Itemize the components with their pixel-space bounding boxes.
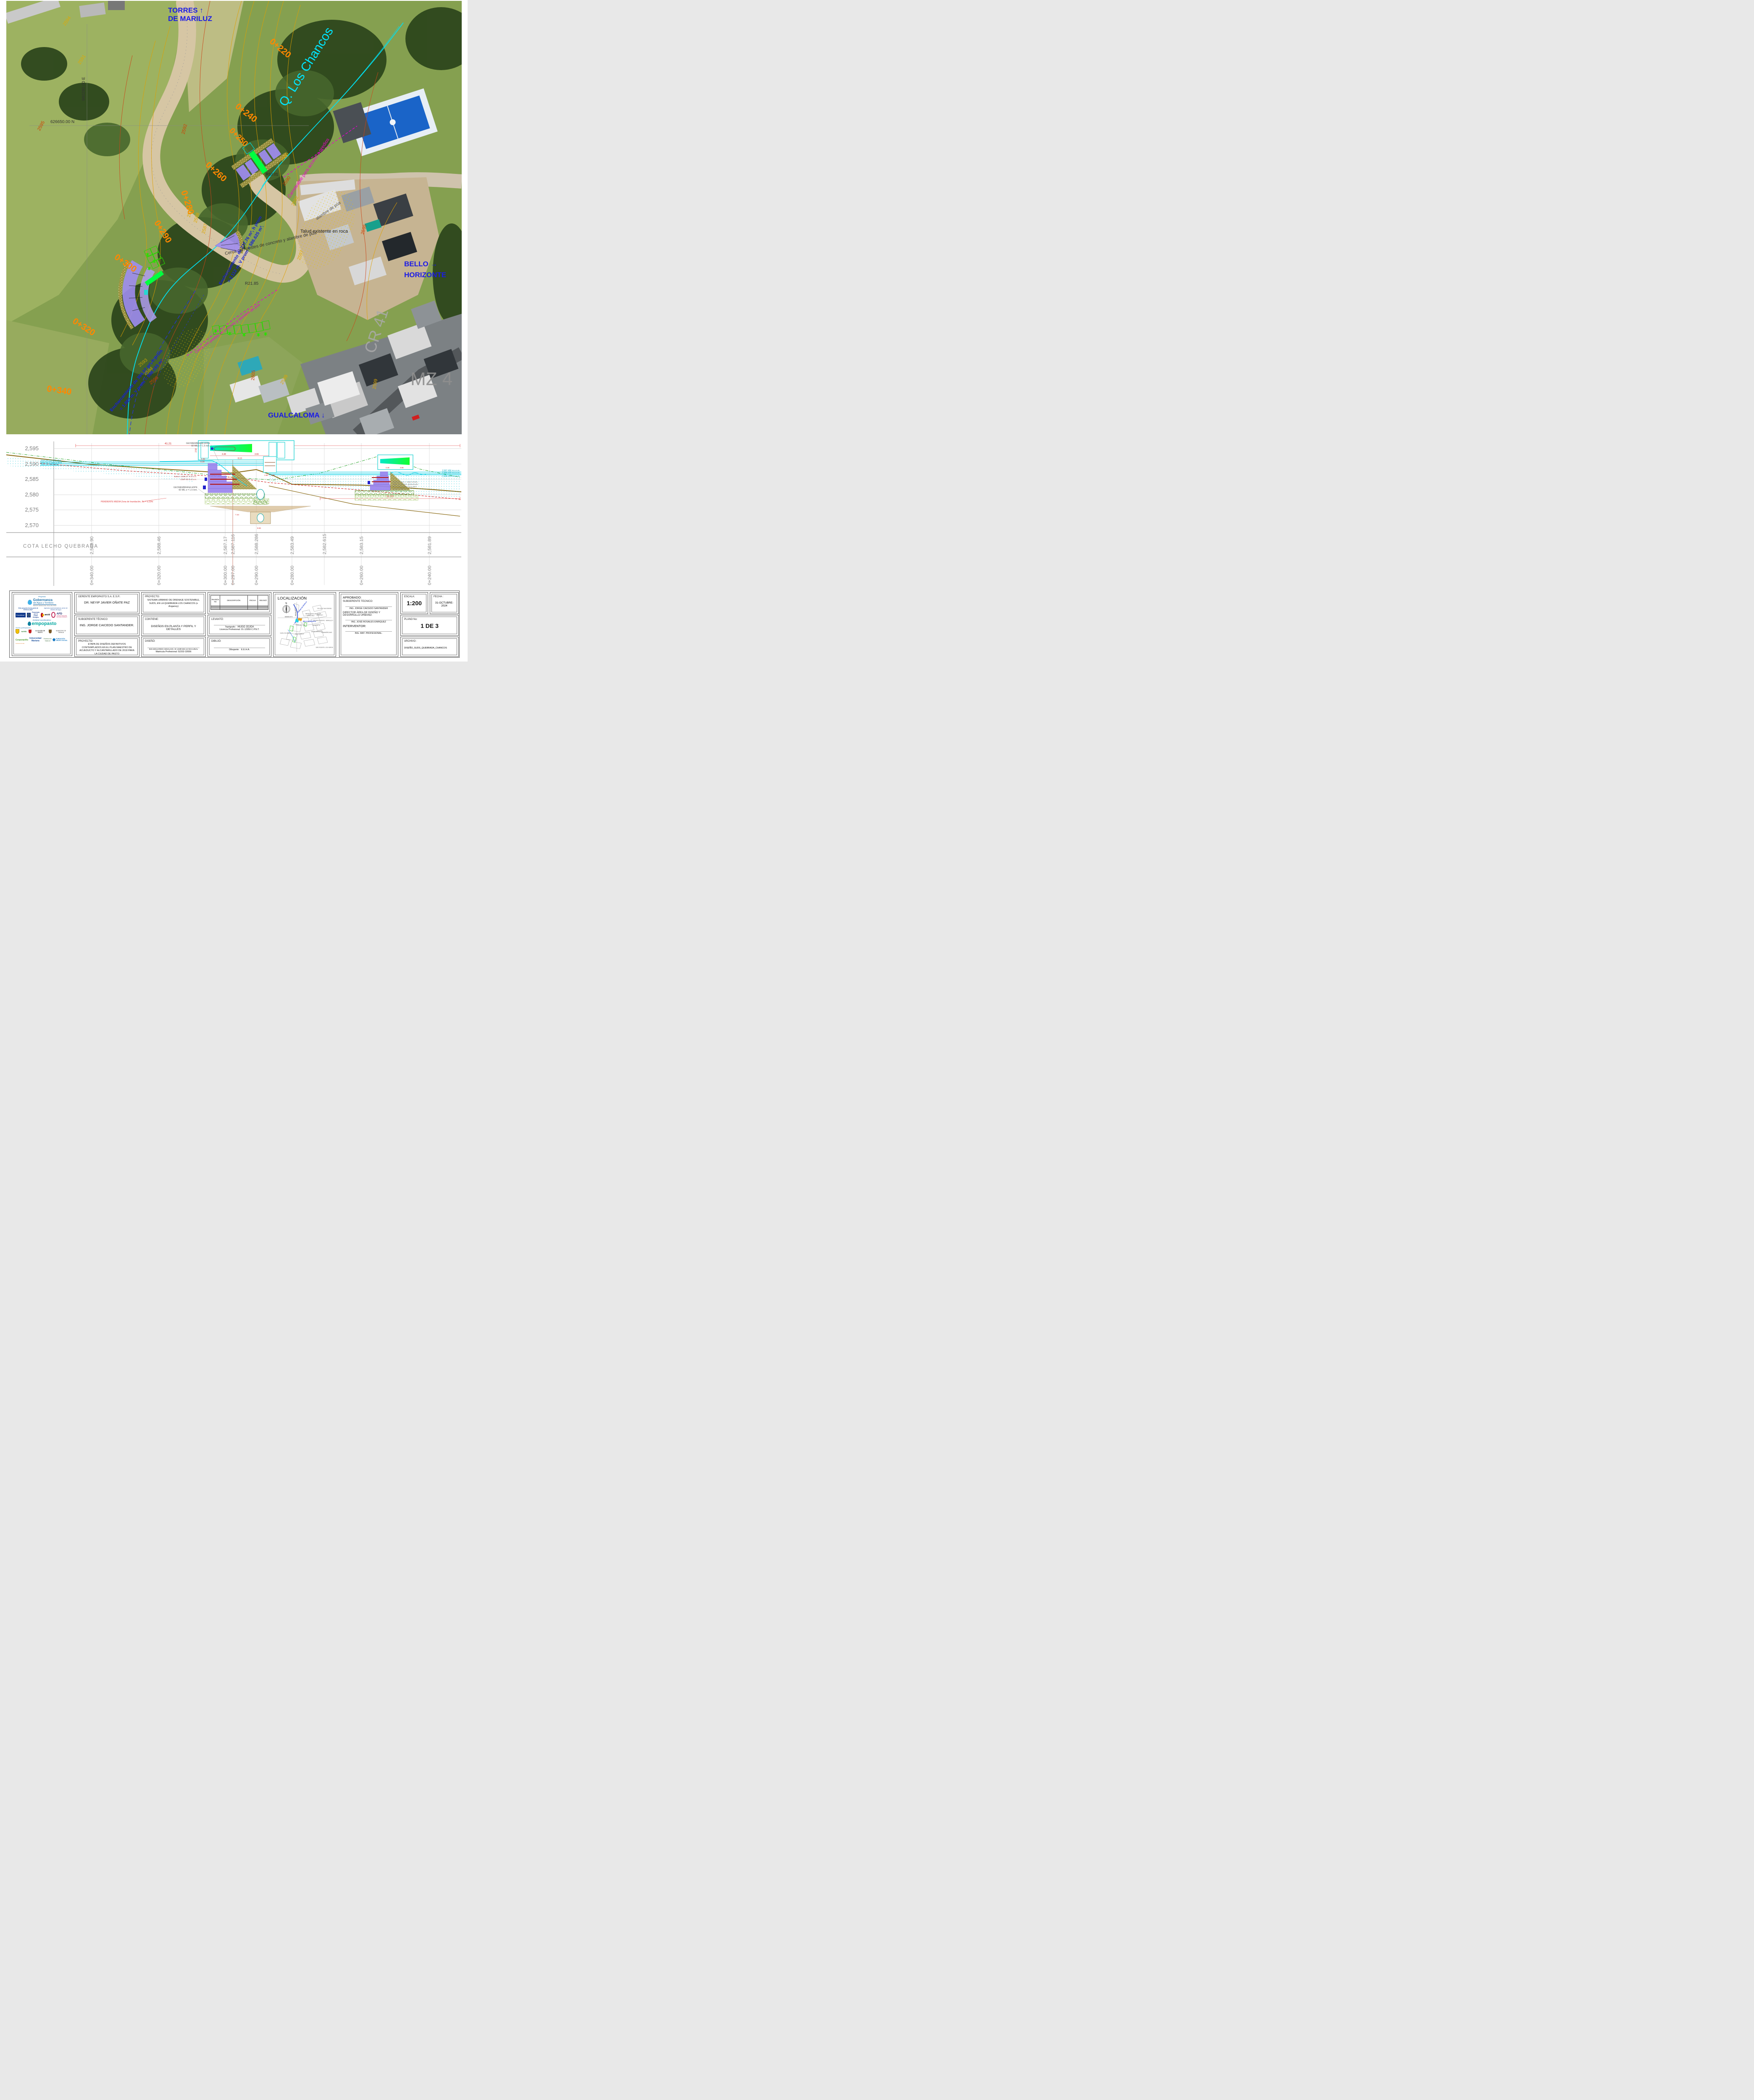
- svg-text:2,588.46: 2,588.46: [157, 536, 162, 554]
- svg-text:8.13: 8.13: [238, 457, 242, 460]
- aecid-icon: [41, 613, 43, 617]
- plan-view: 626650.00 N 980280.00 E: [6, 1, 462, 434]
- svg-text:2,588.286: 2,588.286: [254, 534, 259, 554]
- escudo-icon: [16, 629, 19, 634]
- revision-table: Revisión No DESCRIPCIÓN FECHA REVISÓ: [210, 595, 268, 610]
- fgs-hex-icon: [53, 638, 55, 641]
- svg-text:9.93: 9.93: [257, 527, 261, 529]
- svg-text:LOS HEROES: LOS HEROES: [325, 647, 333, 648]
- svg-text:2,570: 2,570: [25, 522, 39, 528]
- alcaldia-label: ALCALDÍA DE PASTO: [33, 630, 47, 633]
- detail-plan-2: 1.80 0.60: [263, 457, 276, 476]
- empopasto-drop-icon: [28, 622, 31, 626]
- station-values: 0+340.00 0+320.00 0+300.00 0+297.00 0+29…: [89, 566, 432, 585]
- gerente-name: DR. NEYIP JAVIER OÑATE PAZ: [78, 601, 136, 604]
- proyecto1-text: ETAPA DE DISEÑOS DEFINITIVOS CONTEMPLADO…: [78, 643, 136, 655]
- rev-row: [211, 609, 268, 609]
- svg-text:2,587.53 m.s.n.m.: 2,587.53 m.s.n.m.: [181, 478, 197, 481]
- svg-text:2,585: 2,585: [25, 476, 39, 482]
- aprobado-sub-label: SUBGERENTE TECNICO:: [343, 600, 394, 603]
- plano-value: 1 DE 3: [404, 622, 455, 629]
- svg-text:1.80: 1.80: [264, 474, 268, 476]
- eu-flag-icon: [27, 613, 31, 617]
- corponarino-sub: Conserva la vida.: [16, 643, 28, 644]
- gerente-label: GERENTE EMPOPASTO S.A. E.S.P.:: [78, 596, 136, 598]
- grid-north-label: 626650.00 N: [50, 120, 74, 124]
- proyecto2-box: PROYECTO: SISTEMA URBANO DE DRENAJE SOST…: [141, 592, 206, 614]
- svg-text:0+280.00: 0+280.00: [290, 566, 295, 585]
- subgerente-name: ING. JORGE CAICEDO SANTANDER.: [78, 623, 136, 627]
- euroclima-note: Este proyecto forma parte de EUROCLIMA+: [16, 607, 41, 611]
- gobernanza-wordmark: Gobernanza: [33, 598, 56, 602]
- svg-text:3.66: 3.66: [255, 453, 259, 456]
- plano-label: PLANO No:: [404, 618, 455, 621]
- corponarino-wordmark: Corponariño: [16, 639, 28, 641]
- fecha-value: 31-OCTUBRE-2024: [434, 601, 455, 607]
- tangua-shield-icon: [49, 630, 52, 633]
- afd-icon: [51, 612, 55, 618]
- svg-text:amarre calibre 12.: amarre calibre 12.: [392, 488, 408, 490]
- svg-text:VILLA DE SAN RAFAEL: VILLA DE SAN RAFAEL: [317, 608, 332, 609]
- svg-text:0+320.00: 0+320.00: [157, 566, 162, 585]
- loc-grid-n: 626650.00 N: [285, 616, 293, 618]
- svg-text:JORGE GIRALDO: JORGE GIRALDO: [311, 631, 322, 633]
- svg-text:SAN VICENTE: SAN VICENTE: [316, 647, 324, 648]
- pasto-shield-icon: [29, 630, 32, 633]
- svg-text:2,587.116: 2,587.116: [231, 534, 236, 554]
- svg-text:ED BARLOVENTO - MARILUZ II: ED BARLOVENTO - MARILUZ II: [313, 620, 333, 622]
- svg-text:2,587.17: 2,587.17: [223, 536, 228, 554]
- subgerente-box: SUBGERENTE TÉCNICO ING. JORGE CAICEDO SA…: [74, 615, 139, 636]
- svg-text:2,575: 2,575: [25, 507, 39, 513]
- svg-text:7.44: 7.44: [235, 514, 239, 516]
- afd-wordmark: AFD: [57, 612, 68, 615]
- rev-header: REVISÓ: [258, 596, 268, 606]
- svg-text:SINDAMANOY: SINDAMANOY: [295, 633, 304, 635]
- contiene-label: CONTIENE:: [145, 618, 202, 621]
- svg-text:VERACRUZ: VERACRUZ: [307, 615, 315, 617]
- fecha-box: FECHA : 31-OCTUBRE-2024: [430, 592, 459, 614]
- socios-label: Socios participantes:: [16, 627, 68, 629]
- proyecto2-label: PROYECTO:: [145, 596, 202, 598]
- svg-text:4.48: 4.48: [386, 467, 389, 469]
- svg-text:malla de alambre galvanizado: malla de alambre galvanizado: [392, 483, 418, 486]
- levanto-label: LEVANTÓ:: [211, 618, 268, 621]
- detail-plan-3: 4.48 3.66: [378, 455, 413, 470]
- gobernanza-region: REGIÓN HÍDRICA DEL VALLE DE ATRIZ: [33, 604, 56, 606]
- rev-header: Revisión No: [211, 596, 220, 606]
- afd-sub: AGENCE FRANÇAISE DE DEVELOPPEMENT: [57, 615, 68, 618]
- archivo-value: DISEÑO_SUDS_QUEBRADA_CHANCOS: [404, 647, 455, 649]
- contiene-box: CONTIENE: DISEÑOS EN PLANTA Y PERFIL Y D…: [141, 615, 206, 636]
- subgerente-label: SUBGERENTE TÉCNICO: [78, 618, 136, 621]
- rev-header: FECHA: [247, 596, 258, 606]
- proyecto2-text: SISTEMA URBANO DE DRENAJE SOSTENIBLE, SU…: [145, 599, 202, 609]
- torres-label: DE MARILUZ: [168, 15, 212, 23]
- svg-text:GUALCALOMA IV: GUALCALOMA IV: [280, 633, 291, 634]
- svg-text:Batea: 2,588.27 m.s.n.m.: Batea: 2,588.27 m.s.n.m.: [174, 475, 197, 478]
- proyecto1-label: PROYECTO:: [78, 640, 136, 643]
- archivo-box: ARCHIVO : DISEÑO_SUDS_QUEBRADA_CHANCOS: [400, 637, 459, 657]
- svg-text:2.50: 2.50: [195, 448, 197, 452]
- svg-text:MARILUZ III: MARILUZ III: [313, 625, 320, 626]
- torres-label: TORRES ↑: [168, 6, 203, 14]
- msnm-labels: 2,587.456 m.s.n.m. 2,586.926 m.s.n.m. 2,…: [442, 470, 460, 478]
- svg-text:0+340.00: 0+340.00: [89, 566, 95, 585]
- dibujo-name: E.E.H.A.: [241, 648, 250, 651]
- fecha-label: FECHA :: [434, 596, 455, 598]
- aprobado-sub-name: ING. JORGE CAICEDO SANTANDER: [343, 607, 394, 610]
- aprobado-label: APROBADO:: [343, 596, 394, 599]
- interventor-label: INTERVENTOR:: [343, 624, 394, 628]
- svg-text:0+297.00: 0+297.00: [231, 566, 236, 585]
- svg-text:2,583.49: 2,583.49: [290, 536, 295, 554]
- gerente-box: GERENTE EMPOPASTO S.A. E.S.P.: DR. NEYIP…: [74, 592, 139, 614]
- revision-box: Revisión No DESCRIPCIÓN FECHA REVISÓ: [208, 592, 271, 614]
- localizacion-title: LOCALIZACIÓN: [278, 596, 307, 601]
- grid-east-label: 980280.00 E: [82, 77, 86, 101]
- svg-text:0+240.00: 0+240.00: [427, 566, 432, 585]
- svg-text:Nivel de Retención: Nivel de Retención: [41, 464, 58, 466]
- aprobado-box: APROBADO: SUBGERENTE TECNICO: ING. JORGE…: [339, 592, 398, 657]
- svg-text:MARILUZ I: MARILUZ I: [316, 614, 323, 616]
- archivo-label: ARCHIVO :: [404, 640, 455, 643]
- bello-label: HORIZONTE: [404, 271, 446, 279]
- radius-label: R21.85: [245, 281, 259, 286]
- svg-text:0.60: 0.60: [271, 474, 275, 476]
- structure-section-left: [160, 461, 269, 504]
- svg-text:PANAMERICANO: PANAMERICANO: [321, 632, 332, 633]
- svg-text:Gaviones tipo A, triple torsió: Gaviones tipo A, triple torsión,: [392, 481, 418, 483]
- bello-label: BELLO →: [404, 260, 437, 268]
- cota-label: COTA LECHO QUEBRADA: [23, 544, 98, 549]
- localizacion-box: LOCALIZACIÓN N 626650.00 N 980280.00 E: [273, 592, 336, 657]
- logo-proyecto-label: Proyecto: [16, 596, 68, 598]
- svg-text:NTC 2403, calibre 12 y para: NTC 2403, calibre 12 y para: [392, 486, 417, 488]
- svg-text:GUALCALOMA: GUALCALOMA: [296, 624, 305, 626]
- umariana-wordmark: Universidad Mariana: [28, 637, 43, 642]
- escala-box: ESCALA: 1:200: [400, 592, 428, 614]
- proyecto1-box: PROYECTO: ETAPA DE DISEÑOS DEFINITIVOS C…: [74, 637, 139, 657]
- levanto-lic: Licencia Profesional: 01-12959 C.P.N.T.: [211, 628, 268, 631]
- rev-header: DESCRIPCIÓN: [220, 596, 247, 606]
- plano-box: PLANO No: 1 DE 3: [400, 615, 459, 636]
- logos-panel: Proyecto Gobernanza del Agua y Territori…: [12, 592, 72, 656]
- agencias-note: Agencias implementadoras sector de Gesti…: [43, 607, 68, 611]
- svg-text:60 MIL e = 1.5 mm.: 60 MIL e = 1.5 mm.: [179, 489, 197, 491]
- gobernanza-drop-icon: [28, 600, 32, 605]
- aecid-wordmark: aecid: [45, 614, 50, 616]
- diseno-box: DISEÑÓ: ING.EDUARDO.HIDALGO,-IC.UNR-EE.U…: [141, 637, 206, 657]
- svg-text:N: N: [285, 602, 287, 605]
- dibujo-cargo: Dibujante:: [229, 648, 239, 651]
- gualcaloma-label: GUALCALOMA ↓: [268, 411, 325, 419]
- svg-text:2,586.926 m.s.n.m.: 2,586.926 m.s.n.m.: [442, 472, 460, 474]
- euroclima-logo: Euroclima+: [16, 613, 26, 617]
- radius-label: R10.01: [266, 172, 278, 176]
- svg-text:1.20: 1.20: [201, 458, 205, 461]
- compass-icon: N: [283, 602, 290, 614]
- aprobado-dir-name: ING. JOSÉ ROSALES ENRIQUEZ: [343, 621, 394, 623]
- svg-text:2,582.615: 2,582.615: [322, 534, 327, 554]
- aprobado-dir-label: DIRECTOR ÁREA DE DISEÑO Y DESARROLLO URB…: [343, 612, 394, 617]
- svg-text:0+260.00: 0+260.00: [359, 566, 364, 585]
- tangua-label: MUNICIPIO DE TANGUA: [53, 630, 68, 633]
- svg-text:2,595: 2,595: [25, 445, 39, 451]
- gobernanza-sub: del Agua y Territorio: [33, 602, 56, 604]
- fundacion-wordmark: FUNDACIÓN GRUPO SOCIAL: [56, 638, 68, 641]
- diseno-mat-label: Matricula Profesional:: [155, 651, 177, 653]
- contiene-text: DISEÑOS EN PLANTA Y PERFIL Y DETALLES: [145, 625, 202, 631]
- profile-view: 2,5952,590 2,5852,580 2,5752,570 41.21 3…: [0, 436, 468, 591]
- svg-text:2,580: 2,580: [25, 491, 39, 498]
- svg-text:0.30: 0.30: [200, 461, 205, 463]
- svg-text:0+290.00: 0+290.00: [254, 566, 259, 585]
- eu-funding: Financiado por la Unión Europea: [32, 612, 39, 618]
- dibujo-box: DIBUJÓ: Dibujante: E.E.H.A.: [208, 637, 271, 657]
- empopasto-wordmark: empopasto: [32, 621, 57, 626]
- escala-value: 1:200: [404, 600, 424, 606]
- dim-label: 41.21: [165, 442, 172, 445]
- svg-text:2605: 2605: [250, 370, 256, 381]
- narino-label: NARIÑO: [21, 631, 26, 633]
- svg-text:3.66: 3.66: [400, 467, 404, 469]
- mz4-label: MZ 4: [410, 369, 452, 389]
- svg-text:4.48: 4.48: [222, 453, 226, 456]
- svg-text:60 MIL e = 1.5 mm.: 60 MIL e = 1.5 mm.: [191, 445, 210, 447]
- interventor-name: ING. MAT. PROFESIONAL.: [343, 632, 394, 635]
- svg-text:0+300.00: 0+300.00: [223, 566, 228, 585]
- localizacion-map: LOCALIZACIÓN N 626650.00 N 980280.00 E: [276, 595, 333, 654]
- svg-text:2,583.15: 2,583.15: [359, 536, 364, 554]
- svg-text:2,589.90: 2,589.90: [89, 536, 95, 554]
- plan-sheet: 626650.00 N 980280.00 E: [0, 0, 468, 661]
- patrimonio-wordmark: Patrimonio Natural: [43, 638, 53, 642]
- cota-values: 2,589.90 2,588.46 2,587.17 2,587.116 2,5…: [89, 534, 432, 554]
- svg-text:2,581.89: 2,581.89: [427, 536, 432, 554]
- diseno-label: DISEÑÓ:: [145, 640, 202, 643]
- dibujo-label: DIBUJÓ:: [211, 640, 268, 643]
- svg-text:2,586.614 m.s.n.m.: 2,586.614 m.s.n.m.: [442, 475, 460, 478]
- levanto-box: LEVANTÓ: Topógrafo: HUGO JOJOA Licencia …: [208, 615, 271, 636]
- diseno-mat: 52202-32656: [178, 651, 192, 653]
- escala-label: ESCALA:: [404, 596, 424, 598]
